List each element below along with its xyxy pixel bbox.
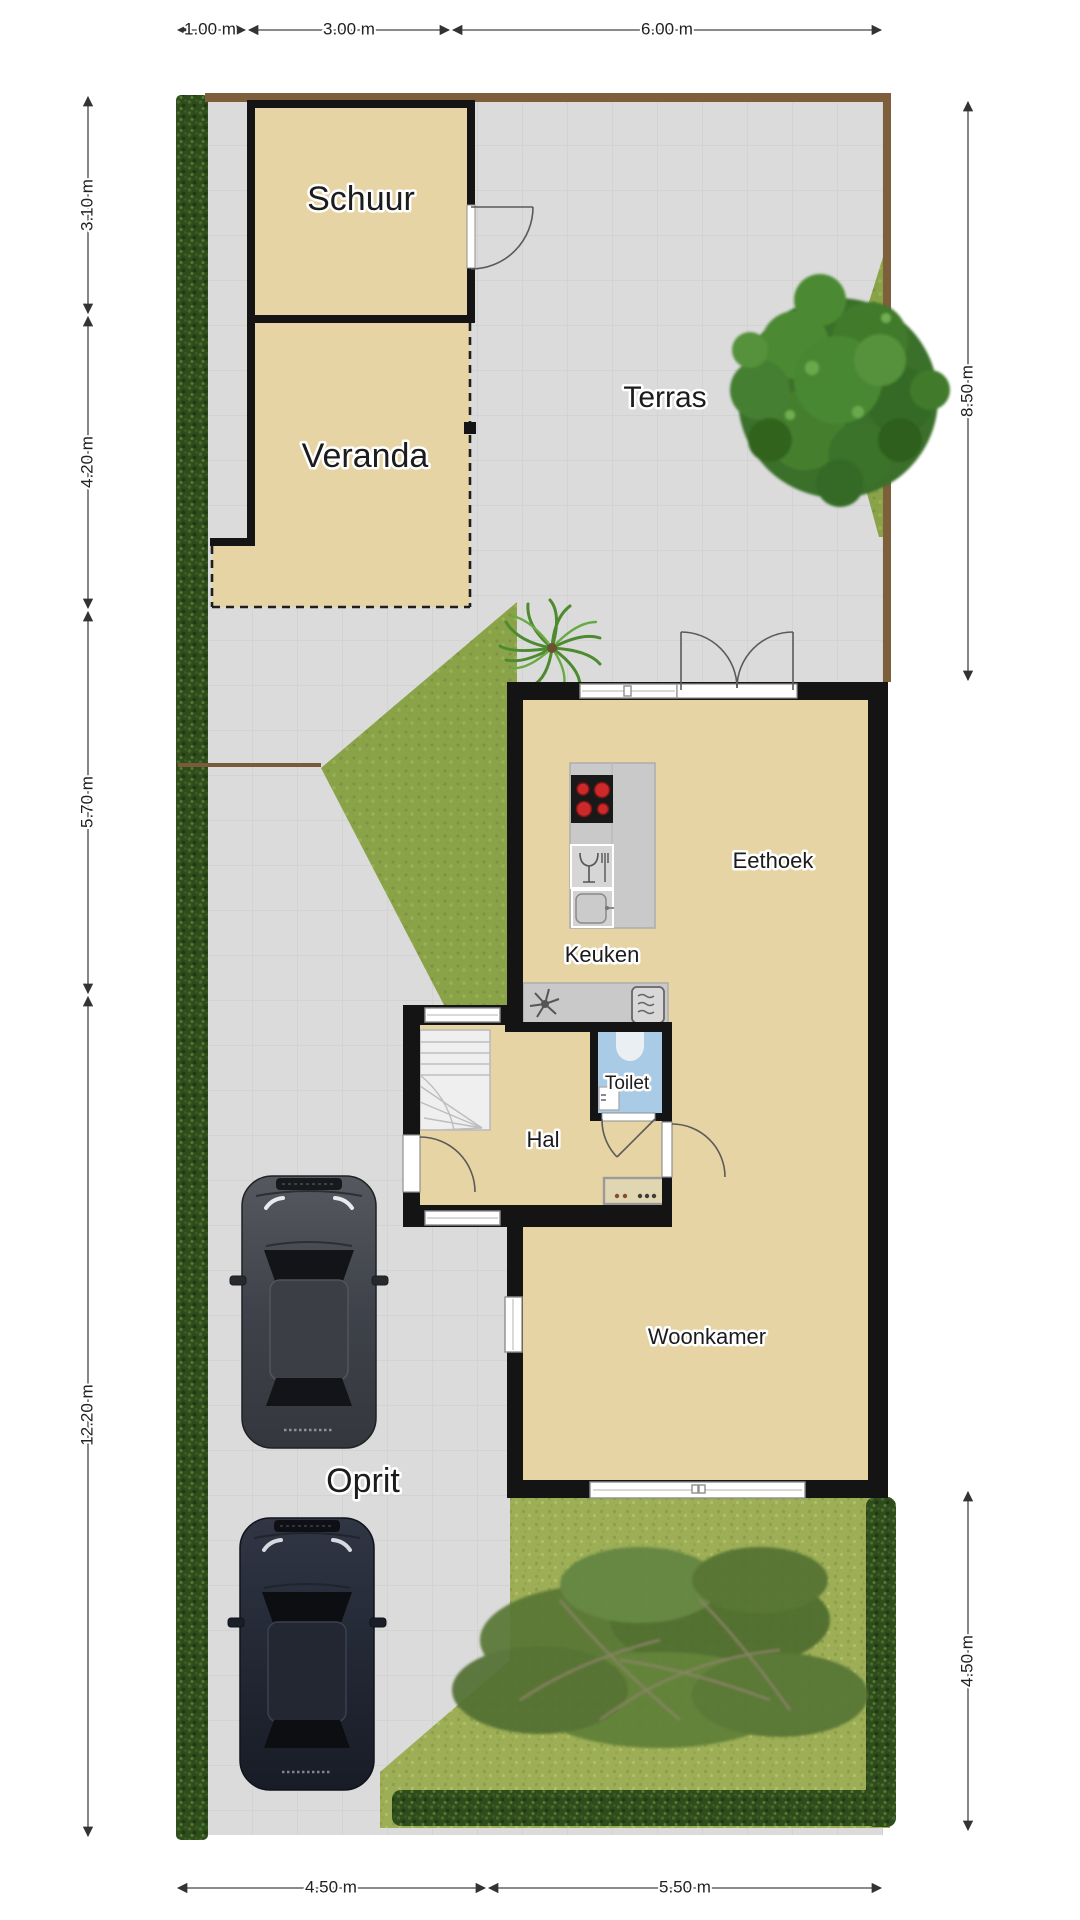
dim-bottom-2: 5.50 m (659, 1877, 711, 1896)
floorplan-page: Schuur Veranda Terras Eethoek Keuken Toi… (0, 0, 1080, 1920)
dim-top-3: 6.00 m (641, 19, 693, 38)
dim-right-1: 8.50 m (957, 365, 976, 417)
staircase (420, 1030, 490, 1130)
dim-bottom-1: 4.50 m (305, 1877, 357, 1896)
label-eethoek: Eethoek (733, 848, 815, 873)
toilet-icon (616, 1030, 644, 1061)
label-woonkamer: Woonkamer (648, 1324, 766, 1349)
living-side-window (505, 1297, 522, 1352)
garden-divider-fence (178, 763, 321, 767)
dim-left-3: 5.70 m (77, 776, 96, 828)
hall-sideboard (604, 1178, 667, 1204)
hall-top-window (425, 1008, 500, 1022)
schuur-door (467, 205, 475, 268)
label-toilet: Toilet (605, 1073, 650, 1094)
hall-bottom-window (425, 1211, 500, 1225)
dining-window (580, 684, 677, 698)
kitchen-lower-counter (523, 983, 668, 1025)
stove-icon (571, 775, 613, 823)
dim-top-1: 1.00 m (184, 19, 236, 38)
dim-top-2: 3.00 m (323, 19, 375, 38)
label-oprit: Oprit (326, 1462, 400, 1500)
oven-icon (632, 987, 664, 1023)
dim-left-4: 12.20 m (77, 1384, 96, 1445)
sink-icon (572, 890, 614, 927)
dishwasher-icon (571, 845, 613, 888)
car-2 (228, 1518, 386, 1790)
car-1 (230, 1176, 388, 1448)
floorplan-drawing: Schuur Veranda Terras Eethoek Keuken Toi… (0, 0, 1080, 1920)
left-hedge (176, 95, 208, 1840)
garden-right-hedge (866, 1497, 896, 1827)
label-schuur: Schuur (307, 180, 415, 218)
dim-right-2: 4.50 m (957, 1635, 976, 1687)
label-veranda: Veranda (302, 437, 429, 475)
label-keuken: Keuken (565, 942, 640, 967)
garden-bottom-hedge (392, 1790, 890, 1826)
dim-left-1: 3.10 m (77, 179, 96, 231)
label-hal: Hal (526, 1127, 559, 1152)
label-terras: Terras (623, 381, 706, 414)
living-rear-window (590, 1482, 805, 1498)
veranda-post (464, 422, 476, 434)
kitchen-counter (570, 763, 655, 928)
dim-left-2: 4.20 m (77, 436, 96, 488)
